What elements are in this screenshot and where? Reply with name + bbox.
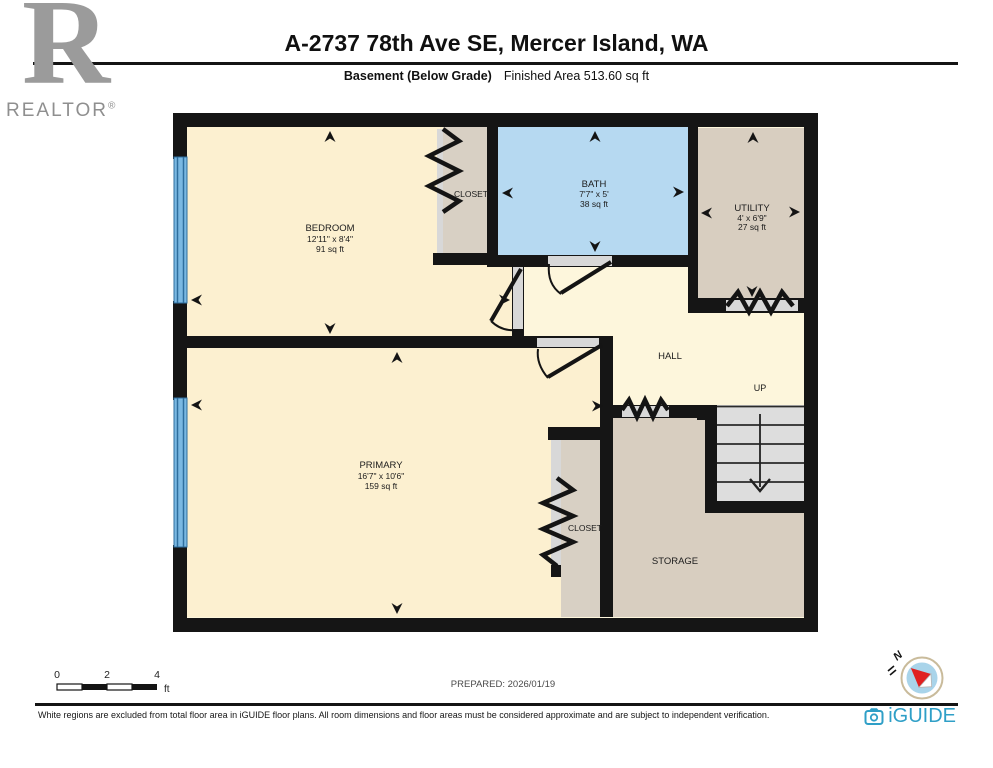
primary-door-opening — [537, 338, 599, 347]
storage-label: STORAGE — [652, 556, 698, 567]
stairs-up-label: UP — [754, 383, 767, 393]
floorplan-page: R REALTOR® A-2737 78th Ave SE, Mercer Is… — [0, 0, 993, 768]
window-bedroom — [174, 157, 187, 303]
primary-area: 159 sq ft — [365, 481, 398, 491]
utility-area: 27 sq ft — [738, 222, 767, 232]
primary-label: PRIMARY — [359, 460, 403, 471]
stairs — [717, 405, 804, 501]
compass-north-label: N — [891, 648, 906, 663]
bath-door-opening — [548, 256, 612, 266]
bedroom-closet-label: CLOSET — [454, 189, 488, 199]
compass-icon: N — [888, 648, 943, 698]
hall-label: HALL — [658, 351, 682, 362]
scale-tick-2: 2 — [104, 669, 110, 681]
scale-unit: ft — [164, 684, 170, 695]
window-primary — [174, 398, 187, 547]
bath-dims: 7'7" x 5' — [579, 189, 609, 199]
scale-bar: 0 2 4 ft — [54, 669, 170, 695]
prepared-date: PREPARED: 2026/01/19 — [451, 679, 555, 690]
iguide-logo: iGUIDE — [864, 705, 956, 728]
storage-opening — [622, 406, 669, 417]
bath-area: 38 sq ft — [580, 199, 609, 209]
scale-tick-0: 0 — [54, 669, 60, 681]
primary-closet-label: CLOSET — [568, 523, 602, 533]
scale-tick-4: 4 — [154, 669, 160, 681]
bedroom-dims: 12'11" x 8'4" — [307, 234, 353, 244]
iguide-camera-icon — [864, 708, 884, 726]
footer-disclaimer: White regions are excluded from total fl… — [38, 710, 769, 720]
primary-dims: 16'7" x 10'6" — [358, 471, 405, 481]
iguide-wordmark: iGUIDE — [888, 705, 956, 728]
floorplan-drawing: BEDROOM 12'11" x 8'4" 91 sq ft CLOSET BA… — [0, 0, 993, 768]
bedroom-label: BEDROOM — [305, 223, 354, 234]
footer-divider — [35, 703, 958, 706]
bedroom-area: 91 sq ft — [316, 244, 345, 254]
